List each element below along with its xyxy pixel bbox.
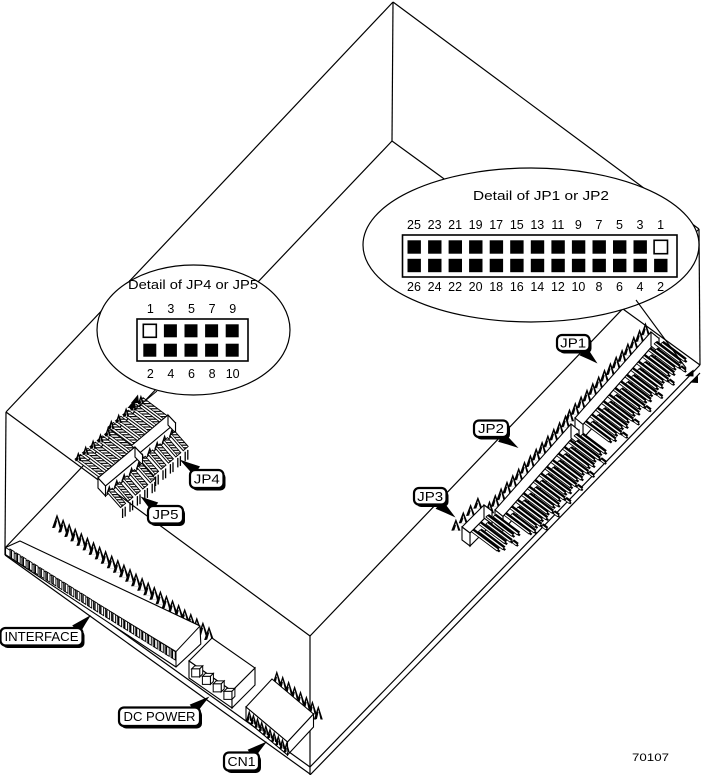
svg-text:9: 9 [575,218,582,232]
svg-text:24: 24 [428,280,442,294]
svg-text:JP5: JP5 [153,508,179,522]
svg-text:20: 20 [469,280,483,294]
svg-text:8: 8 [596,280,603,294]
svg-text:21: 21 [448,218,462,232]
svg-text:15: 15 [510,218,524,232]
svg-text:7: 7 [209,302,216,316]
svg-text:12: 12 [551,280,565,294]
svg-text:13: 13 [530,218,544,232]
svg-text:10: 10 [226,367,240,381]
svg-text:11: 11 [551,218,564,232]
svg-text:22: 22 [448,280,462,294]
svg-text:9: 9 [229,302,236,316]
svg-text:19: 19 [469,218,483,232]
svg-text:14: 14 [530,280,544,294]
svg-text:17: 17 [489,218,503,232]
svg-text:70107: 70107 [632,752,669,764]
svg-text:Detail of JP1 or JP2: Detail of JP1 or JP2 [473,188,609,203]
svg-text:JP1: JP1 [560,337,586,351]
svg-text:4: 4 [637,280,644,294]
svg-text:3: 3 [167,302,174,316]
svg-text:4: 4 [167,367,174,381]
svg-text:INTERFACE: INTERFACE [5,630,79,644]
svg-text:DC POWER: DC POWER [124,710,196,724]
svg-text:JP2: JP2 [478,422,504,436]
svg-text:10: 10 [571,280,585,294]
svg-text:7: 7 [596,218,603,232]
svg-text:26: 26 [407,280,421,294]
svg-text:5: 5 [616,218,623,232]
svg-text:Detail of JP4 or JP5: Detail of JP4 or JP5 [128,277,258,292]
svg-text:5: 5 [188,302,195,316]
svg-text:2: 2 [147,367,154,381]
svg-text:8: 8 [209,367,216,381]
svg-text:6: 6 [188,367,195,381]
svg-text:6: 6 [616,280,623,294]
svg-text:3: 3 [637,218,644,232]
svg-text:25: 25 [407,218,421,232]
svg-text:JP3: JP3 [417,490,443,504]
svg-text:JP4: JP4 [194,473,220,487]
svg-text:18: 18 [489,280,503,294]
svg-text:CN1: CN1 [228,755,256,769]
svg-text:2: 2 [657,280,664,294]
svg-text:23: 23 [428,218,442,232]
svg-text:1: 1 [657,218,664,232]
svg-text:1: 1 [147,302,154,316]
svg-text:16: 16 [510,280,524,294]
